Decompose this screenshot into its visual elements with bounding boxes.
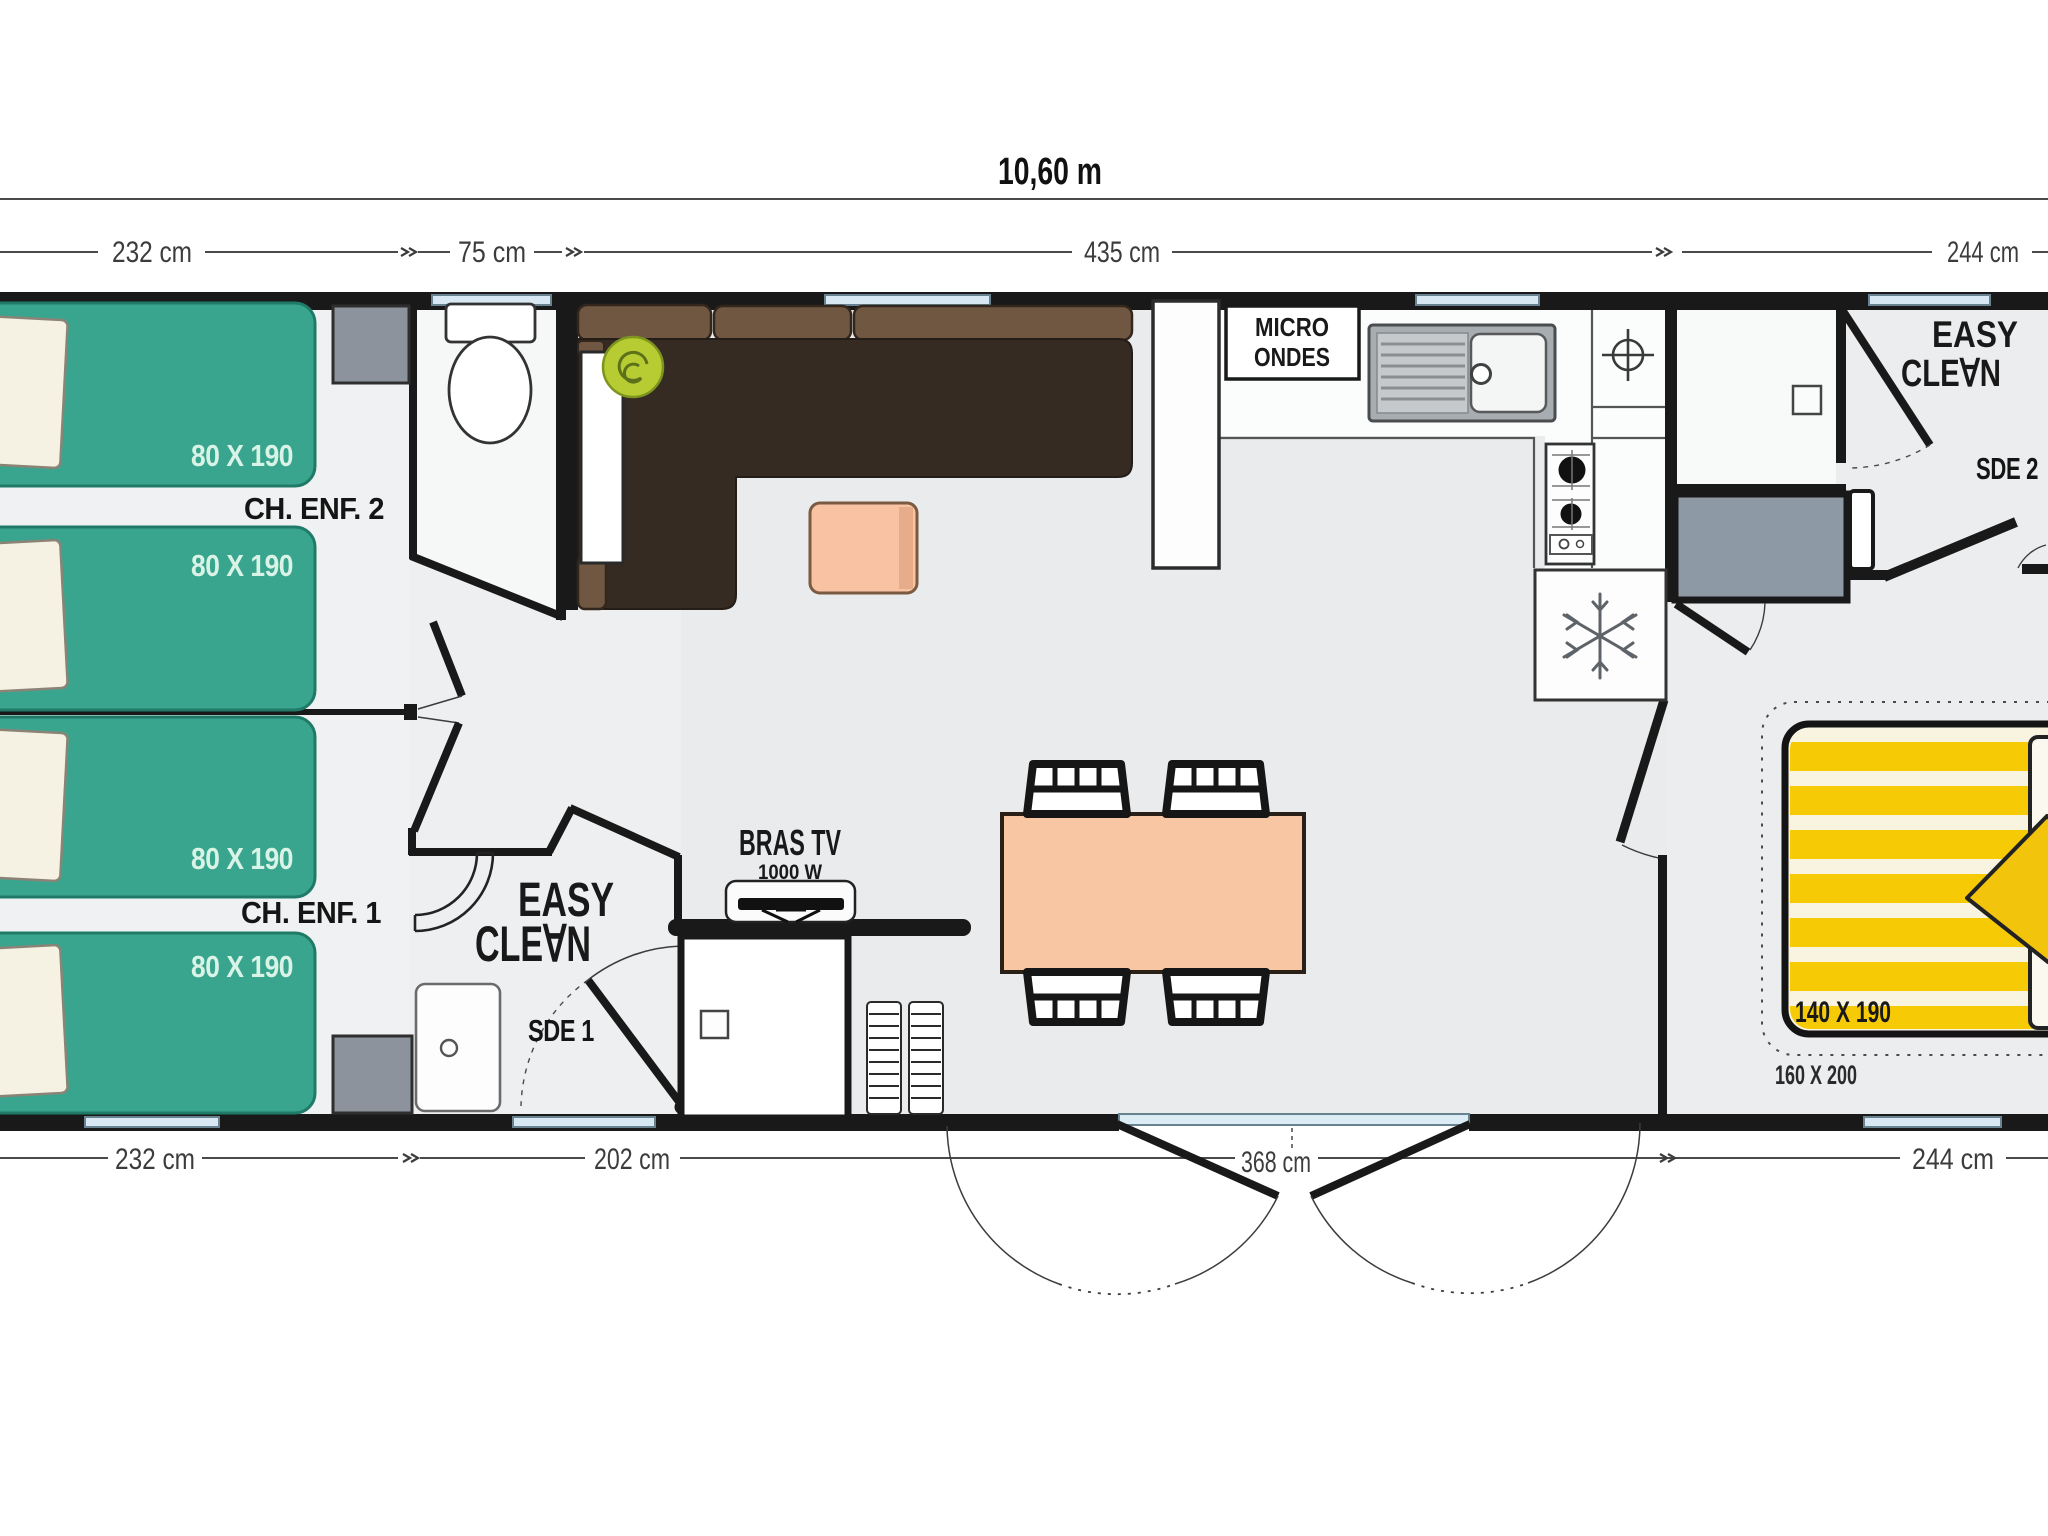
svg-text:EASY: EASY xyxy=(1932,314,2018,355)
svg-text:244 cm: 244 cm xyxy=(1912,1143,1994,1176)
svg-text:ONDES: ONDES xyxy=(1254,342,1330,372)
svg-text:80 X 190: 80 X 190 xyxy=(191,841,293,876)
svg-text:1000 W: 1000 W xyxy=(758,861,822,884)
svg-text:75 cm: 75 cm xyxy=(458,236,526,269)
svg-text:80 X 190: 80 X 190 xyxy=(191,548,293,583)
svg-text:435 cm: 435 cm xyxy=(1084,236,1160,269)
svg-text:232 cm: 232 cm xyxy=(115,1143,195,1176)
svg-text:MICRO: MICRO xyxy=(1255,312,1329,342)
svg-text:244 cm: 244 cm xyxy=(1947,236,2019,269)
svg-text:CH. ENF. 1: CH. ENF. 1 xyxy=(241,895,381,930)
svg-text:160 X 200: 160 X 200 xyxy=(1775,1060,1857,1090)
svg-text:202 cm: 202 cm xyxy=(594,1143,670,1176)
svg-text:BRAS TV: BRAS TV xyxy=(739,822,841,863)
svg-text:10,60 m: 10,60 m xyxy=(998,151,1102,193)
svg-text:80 X 190: 80 X 190 xyxy=(191,949,293,984)
svg-text:CH. ENF. 2: CH. ENF. 2 xyxy=(244,491,384,526)
svg-text:CLE∀N: CLE∀N xyxy=(1901,353,2001,395)
svg-text:SDE 2: SDE 2 xyxy=(1976,451,2038,486)
svg-text:232 cm: 232 cm xyxy=(112,236,192,269)
svg-text:140 X 190: 140 X 190 xyxy=(1795,996,1891,1029)
svg-text:SDE 1: SDE 1 xyxy=(528,1013,594,1048)
svg-text:368 cm: 368 cm xyxy=(1241,1146,1311,1179)
svg-text:CLE∀N: CLE∀N xyxy=(475,916,591,972)
svg-text:80 X 190: 80 X 190 xyxy=(191,438,293,473)
